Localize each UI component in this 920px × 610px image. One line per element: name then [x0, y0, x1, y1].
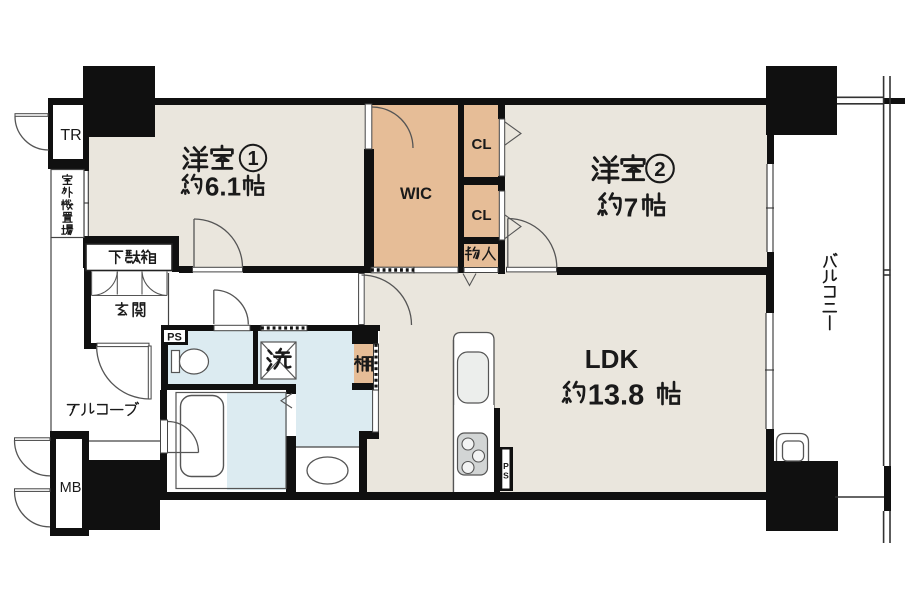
svg-text:1: 1	[247, 148, 258, 170]
svg-text:PS: PS	[167, 332, 182, 344]
svg-text:7: 7	[624, 193, 638, 223]
svg-text:CL: CL	[472, 136, 492, 153]
svg-text:MB: MB	[60, 480, 82, 496]
svg-text:P: P	[503, 461, 509, 471]
svg-text:2: 2	[654, 158, 665, 181]
svg-text:CL: CL	[472, 207, 492, 224]
svg-text:TR: TR	[60, 127, 81, 144]
svg-text:LDK: LDK	[585, 344, 639, 374]
svg-text:WIC: WIC	[400, 185, 432, 203]
svg-text:6.1: 6.1	[205, 172, 241, 202]
svg-text:S: S	[503, 471, 509, 481]
svg-text:13.8: 13.8	[588, 380, 644, 412]
